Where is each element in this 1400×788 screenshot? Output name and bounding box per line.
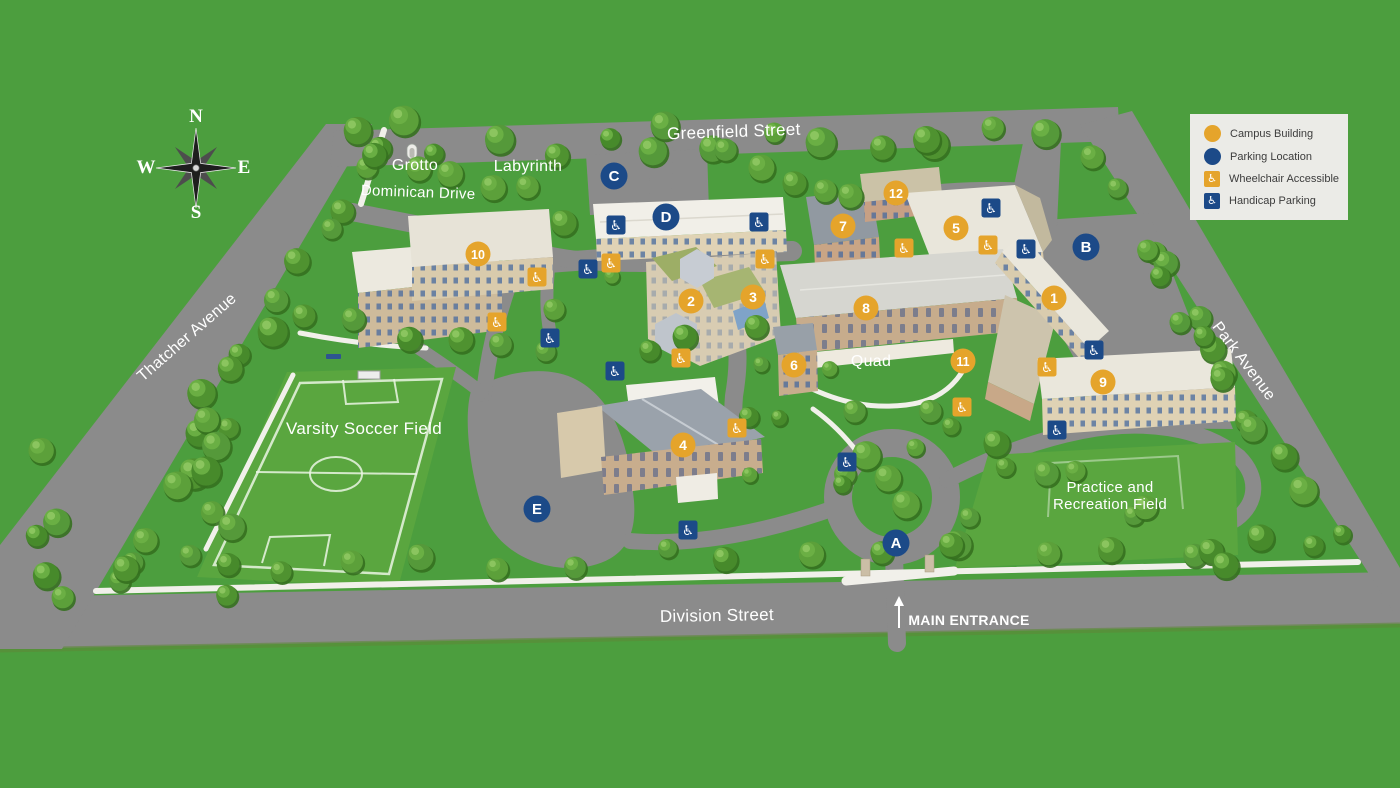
svg-text:♿: ♿ — [605, 256, 617, 272]
svg-text:10: 10 — [471, 248, 485, 262]
svg-text:♿: ♿ — [956, 400, 968, 416]
handicap-parking-icon: ♿ — [838, 453, 857, 472]
parking-marker-C[interactable]: C — [601, 163, 628, 190]
legend-row-handicap-parking: ♿ Handicap Parking — [1204, 193, 1344, 209]
svg-text:E: E — [532, 501, 542, 518]
building-marker-3[interactable]: 3 — [741, 285, 766, 310]
svg-text:11: 11 — [956, 355, 969, 369]
parking-marker-E[interactable]: E — [524, 496, 551, 523]
entrance-gate-pillar — [861, 559, 870, 576]
building-marker-5[interactable]: 5 — [944, 216, 969, 241]
wheelchair-accessible-icon: ♿ — [979, 236, 998, 255]
svg-text:♿: ♿ — [982, 238, 994, 254]
svg-text:4: 4 — [679, 437, 687, 453]
svg-text:9: 9 — [1099, 374, 1107, 390]
svg-text:1: 1 — [1050, 290, 1058, 306]
building-marker-12[interactable]: 12 — [884, 181, 909, 206]
wheelchair-accessible-icon: ♿ — [1038, 358, 1057, 377]
campus-map-stage: ♿♿♿♿♿♿♿♿♿♿♿♿♿♿♿♿♿♿♿♿♿123456789101112ABCD… — [0, 0, 1400, 788]
wheelchair-accessible-icon: ♿ — [756, 250, 775, 269]
building-marker-7[interactable]: 7 — [831, 214, 856, 239]
svg-text:A: A — [891, 535, 902, 552]
compass-west: W — [137, 157, 156, 178]
parking-marker-D[interactable]: D — [653, 204, 680, 231]
wheelchair-accessible-icon: ♿ — [895, 239, 914, 258]
main-entrance-road — [894, 556, 897, 643]
handicap-parking-icon: ♿ — [1048, 421, 1067, 440]
place-label-varsity-soccer-field: Varsity Soccer Field — [286, 419, 442, 438]
place-label-labyrinth: Labyrinth — [494, 158, 563, 175]
svg-text:6: 6 — [790, 357, 798, 373]
building-marker-4[interactable]: 4 — [671, 433, 696, 458]
legend-row-parking-location: Parking Location — [1204, 148, 1344, 165]
wheelchair-accessible-icon: ♿ — [672, 349, 691, 368]
svg-text:2: 2 — [687, 293, 695, 309]
parking-marker-A[interactable]: A — [883, 530, 910, 557]
parking-location-legend-icon — [1204, 148, 1221, 165]
building-marker-6[interactable]: 6 — [782, 353, 807, 378]
compass-east: E — [238, 157, 251, 178]
building-marker-10[interactable]: 10 — [466, 242, 491, 267]
svg-text:♿: ♿ — [682, 523, 694, 539]
handicap-parking-icon: ♿ — [1017, 240, 1036, 259]
street-label-division-street: Division Street — [660, 605, 774, 626]
wheelchair-accessible-icon: ♿ — [602, 254, 621, 273]
svg-text:♿: ♿ — [610, 218, 622, 234]
svg-text:12: 12 — [889, 187, 903, 201]
handicap-parking-icon: ♿ — [982, 199, 1001, 218]
legend-label: Parking Location — [1230, 151, 1312, 163]
place-label-grotto: Grotto — [392, 157, 438, 174]
svg-text:♿: ♿ — [491, 315, 503, 331]
handicap-parking-icon: ♿ — [541, 329, 560, 348]
svg-text:3: 3 — [749, 289, 757, 305]
building-marker-11[interactable]: 11 — [951, 349, 976, 374]
legend-row-wheelchair-accessible: ♿ Wheelchair Accessible — [1204, 171, 1344, 187]
wheelchair-accessible-icon: ♿ — [953, 398, 972, 417]
building-marker-1[interactable]: 1 — [1042, 286, 1067, 311]
handicap-parking-icon: ♿ — [679, 521, 698, 540]
svg-text:♿: ♿ — [609, 364, 621, 380]
parking-marker-B[interactable]: B — [1073, 234, 1100, 261]
handicap-parking-icon: ♿ — [607, 216, 626, 235]
main-entrance-label: MAIN ENTRANCE — [908, 612, 1029, 628]
wheelchair-accessible-icon: ♿ — [728, 419, 747, 438]
svg-text:7: 7 — [839, 218, 847, 234]
legend-row-campus-building: Campus Building — [1204, 125, 1344, 142]
legend-label: Campus Building — [1230, 128, 1313, 140]
svg-text:♿: ♿ — [1020, 242, 1032, 258]
svg-text:♿: ♿ — [1051, 423, 1063, 439]
svg-text:8: 8 — [862, 300, 870, 316]
campus-building-legend-icon — [1204, 125, 1221, 142]
place-label-practice-and-recreation-field: Practice andRecreation Field — [1053, 479, 1167, 513]
svg-text:♿: ♿ — [898, 241, 910, 257]
place-label-quad: Quad — [851, 353, 891, 370]
legend: Campus Building Parking Location ♿ Wheel… — [1190, 114, 1348, 220]
wheelchair-accessible-icon: ♿ — [528, 268, 547, 287]
compass-north: N — [189, 106, 203, 127]
entrance-gate-pillar — [925, 555, 934, 572]
handicap-parking-legend-icon: ♿ — [1204, 193, 1220, 209]
handicap-parking-icon: ♿ — [606, 362, 625, 381]
svg-text:D: D — [661, 209, 672, 226]
svg-text:♿: ♿ — [753, 215, 765, 231]
svg-text:♿: ♿ — [759, 252, 771, 268]
wheelchair-accessible-icon: ♿ — [488, 313, 507, 332]
svg-text:♿: ♿ — [1041, 360, 1053, 376]
svg-text:♿: ♿ — [675, 351, 687, 367]
svg-text:♿: ♿ — [841, 455, 853, 471]
legend-label: Wheelchair Accessible — [1229, 173, 1339, 185]
handicap-parking-icon: ♿ — [579, 260, 598, 279]
wheelchair-accessible-legend-icon: ♿ — [1204, 171, 1220, 187]
svg-text:♿: ♿ — [582, 262, 594, 278]
svg-text:♿: ♿ — [531, 270, 543, 286]
handicap-parking-icon: ♿ — [1085, 341, 1104, 360]
svg-text:♿: ♿ — [731, 421, 743, 437]
bench — [326, 354, 341, 359]
svg-text:5: 5 — [952, 220, 960, 236]
svg-text:♿: ♿ — [985, 201, 997, 217]
building-marker-2[interactable]: 2 — [679, 289, 704, 314]
compass-center — [193, 165, 199, 171]
building-marker-9[interactable]: 9 — [1091, 370, 1116, 395]
svg-text:♿: ♿ — [544, 331, 556, 347]
legend-label: Handicap Parking — [1229, 195, 1316, 207]
handicap-parking-icon: ♿ — [750, 213, 769, 232]
svg-text:♿: ♿ — [1088, 343, 1100, 359]
compass-south: S — [191, 202, 202, 223]
building-marker-8[interactable]: 8 — [854, 296, 879, 321]
svg-text:B: B — [1081, 239, 1092, 256]
svg-text:C: C — [609, 168, 620, 185]
